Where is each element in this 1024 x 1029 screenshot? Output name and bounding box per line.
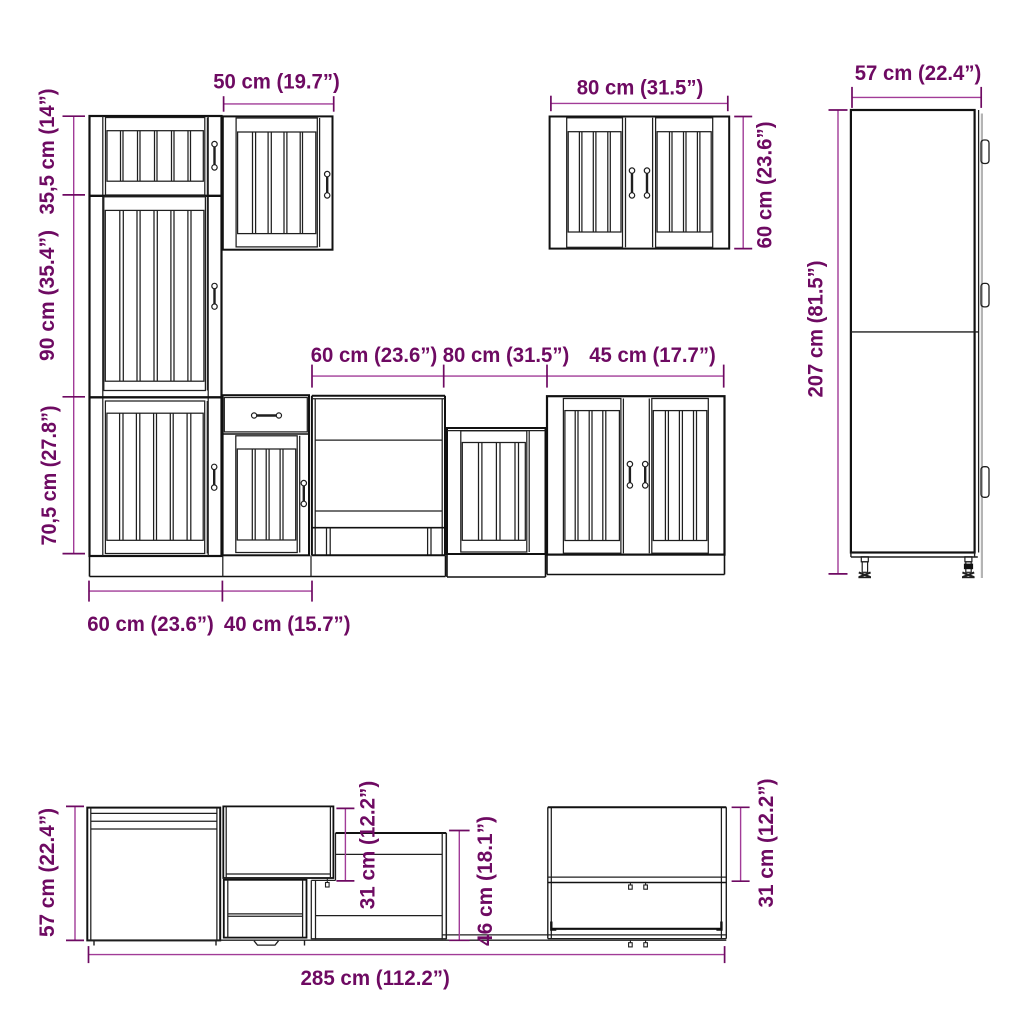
svg-text:46 cm (18.1”): 46 cm (18.1”) [474, 816, 497, 946]
svg-text:90 cm (35.4”): 90 cm (35.4”) [36, 230, 59, 361]
svg-text:31 cm (12.2”): 31 cm (12.2”) [357, 781, 380, 910]
svg-text:285 cm (112.2”): 285 cm (112.2”) [301, 967, 450, 990]
svg-text:70,5 cm (27.8”): 70,5 cm (27.8”) [38, 406, 61, 546]
svg-text:45 cm (17.7”): 45 cm (17.7”) [589, 344, 716, 367]
svg-text:60 cm (23.6”): 60 cm (23.6”) [311, 344, 438, 367]
svg-text:57 cm (22.4”): 57 cm (22.4”) [36, 808, 59, 937]
svg-text:35,5 cm (14”): 35,5 cm (14”) [36, 89, 59, 215]
svg-text:31 cm (12.2”): 31 cm (12.2”) [755, 779, 778, 908]
svg-text:80 cm (31.5”): 80 cm (31.5”) [577, 77, 704, 100]
svg-text:57 cm (22.4”): 57 cm (22.4”) [855, 62, 982, 85]
svg-text:60 cm (23.6”): 60 cm (23.6”) [87, 613, 214, 636]
svg-text:40 cm (15.7”): 40 cm (15.7”) [224, 613, 351, 636]
svg-text:80 cm (31.5”): 80 cm (31.5”) [443, 344, 570, 367]
svg-text:60 cm (23.6”): 60 cm (23.6”) [754, 122, 777, 249]
svg-text:50 cm (19.7”): 50 cm (19.7”) [213, 71, 340, 94]
svg-text:207 cm (81.5”): 207 cm (81.5”) [805, 261, 828, 398]
